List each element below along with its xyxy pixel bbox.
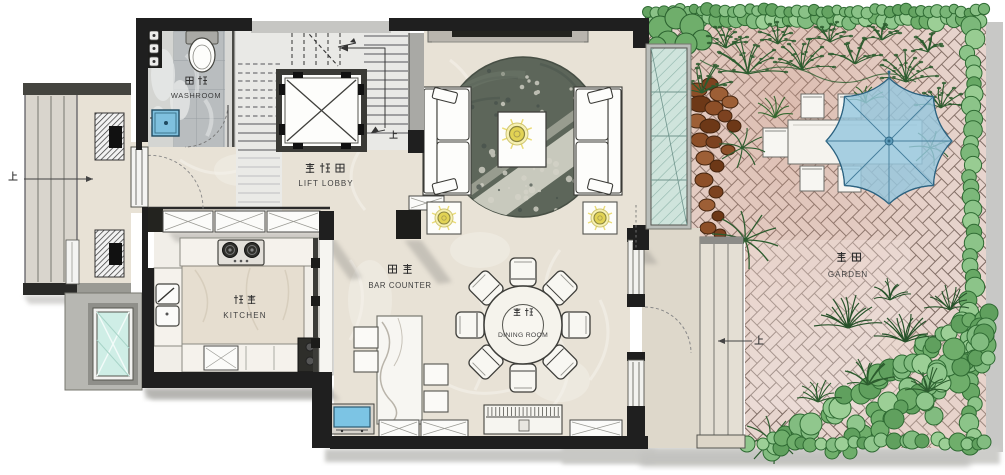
svg-text:KITCHEN: KITCHEN <box>223 311 267 320</box>
svg-text:GARDEN: GARDEN <box>828 270 868 279</box>
svg-text:LIFT LOBBY: LIFT LOBBY <box>298 179 353 188</box>
svg-text:BAR COUNTER: BAR COUNTER <box>368 281 431 290</box>
svg-text:DINING ROOM: DINING ROOM <box>498 332 548 339</box>
svg-text:WASHROOM: WASHROOM <box>171 91 221 100</box>
